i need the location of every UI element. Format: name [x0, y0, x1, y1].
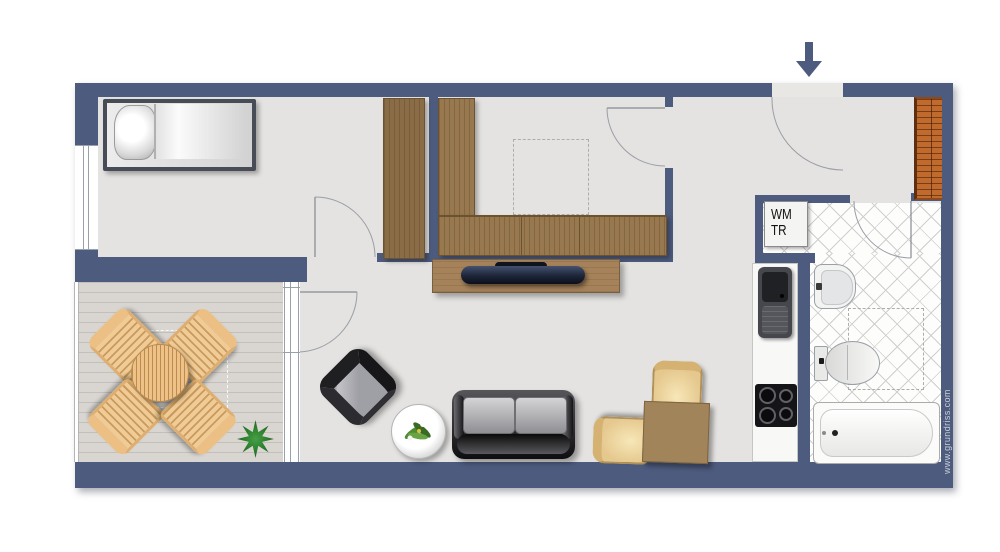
- burner: [759, 387, 776, 404]
- wall-top-left: [75, 83, 772, 97]
- sink-basin: [762, 272, 788, 302]
- terrace-door-frame-mark: [283, 352, 300, 353]
- burner: [759, 407, 776, 424]
- tv-sideboard: [432, 259, 620, 293]
- arrow-head: [796, 61, 822, 77]
- sofa-backrest: [457, 434, 570, 454]
- wall-utility-left: [755, 195, 763, 258]
- window-terrace-band: [283, 282, 300, 462]
- closet-tall: [438, 98, 475, 219]
- door-arc: [315, 197, 375, 257]
- sofa-cushion: [515, 397, 567, 434]
- door-arc: [607, 108, 665, 166]
- potted-plant: [237, 420, 274, 458]
- pillow: [114, 105, 156, 160]
- sink-drainboard: [762, 306, 788, 334]
- window-glass-line: [290, 282, 291, 462]
- wall-stub-hall-door: [665, 97, 673, 107]
- armchair-wrapper: [316, 345, 400, 429]
- toilet-bowl: [825, 341, 880, 385]
- watermark: www.grundriss.com: [942, 389, 952, 474]
- tv: [461, 266, 585, 284]
- armchair: [314, 343, 402, 431]
- sink-bowl: [821, 270, 853, 305]
- burner: [779, 389, 793, 403]
- closet-door-divider: [521, 217, 522, 255]
- wardrobe-bedroom: [383, 98, 425, 259]
- window-glass-line: [83, 145, 84, 250]
- door-arc: [854, 201, 911, 258]
- window-glass-line: [284, 282, 285, 462]
- wall-top-right: [843, 83, 953, 97]
- flower-decoration: [392, 405, 445, 458]
- wall-bottom: [75, 462, 953, 488]
- wall-utility-bottom: [755, 253, 815, 263]
- bathtub: [813, 402, 940, 464]
- flush-button: [819, 358, 824, 364]
- terrace-door-frame-mark: [283, 287, 300, 288]
- sofa-cushion: [463, 397, 515, 434]
- cooktop: [755, 384, 797, 427]
- drain: [832, 430, 838, 436]
- wall-left-upper: [75, 83, 98, 145]
- window-glass-line: [298, 282, 299, 462]
- floor-plan: WM TR www.grundriss.com: [0, 0, 1000, 552]
- window-frame-line: [75, 249, 98, 250]
- door-arc: [297, 292, 357, 352]
- bed: [103, 99, 256, 171]
- terrace-table: [131, 344, 189, 402]
- faucet: [816, 283, 822, 290]
- closet-door-divider: [579, 217, 580, 255]
- kitchen-sink-unit: [758, 267, 792, 338]
- window-frame-line: [75, 145, 98, 146]
- arrow-shaft: [805, 42, 813, 62]
- sofa: [452, 390, 575, 459]
- side-table: [391, 404, 446, 459]
- utility-closet-label: WM TR: [764, 201, 808, 247]
- burner: [779, 407, 793, 421]
- washing-machine-label: WM: [771, 207, 799, 223]
- wall-bedroom-terrace: [75, 257, 307, 282]
- wall-kitchen-bathroom: [797, 263, 810, 462]
- closet-row: [438, 215, 667, 256]
- window-bedroom: [75, 145, 98, 250]
- dining-table: [642, 401, 710, 464]
- dryer-label: TR: [771, 223, 799, 239]
- wall-bedroom-dressing: [429, 97, 438, 257]
- entry-arrow-icon: [796, 42, 822, 78]
- bathroom-sink: [814, 264, 856, 309]
- terrace-edge-railing: [74, 282, 79, 462]
- radiator: [914, 97, 942, 200]
- toilet-seat-line: [847, 345, 848, 380]
- blanket: [154, 104, 245, 159]
- window-glass-line: [88, 145, 89, 250]
- drain: [780, 294, 784, 298]
- faucet: [822, 431, 826, 435]
- entry-door-arc: [772, 97, 843, 170]
